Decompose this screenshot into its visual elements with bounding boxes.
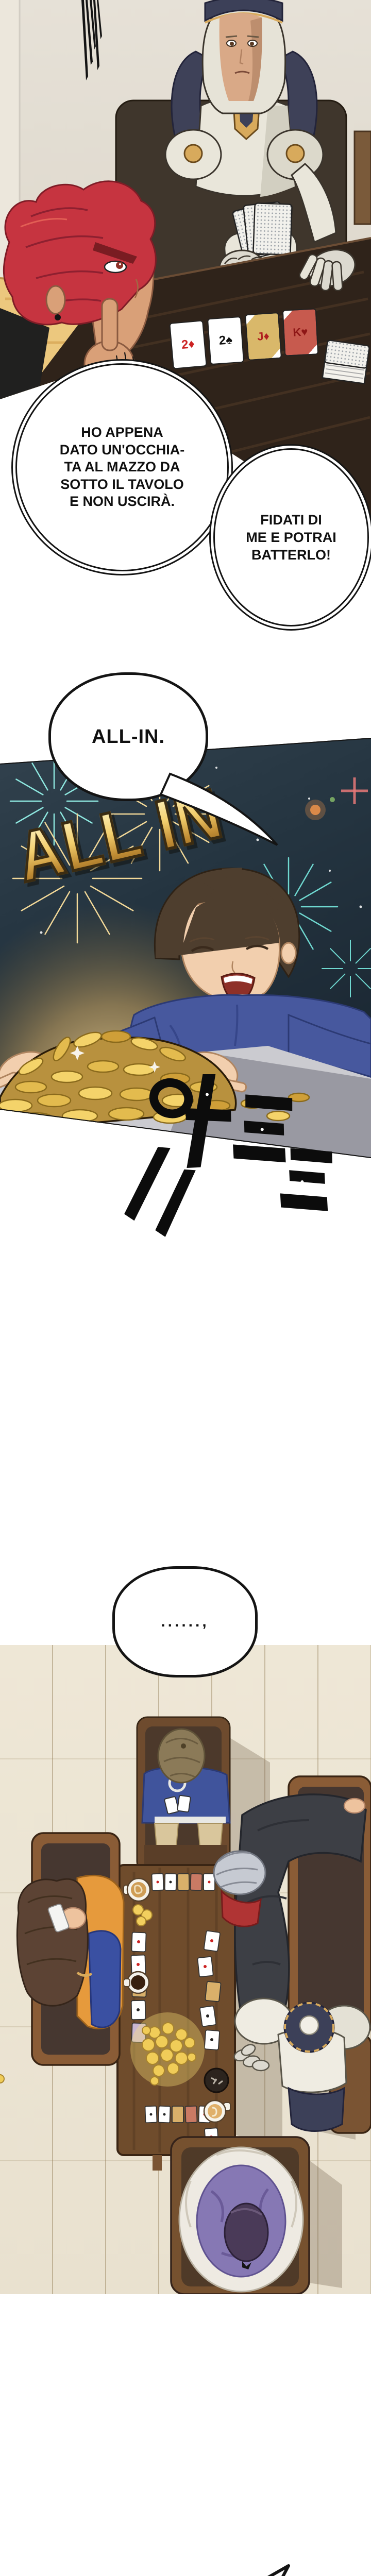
chair-edge: [355, 131, 371, 224]
bubble-line: ALL-IN.: [92, 726, 165, 748]
sfx-coins: 와르르: [124, 1074, 361, 1265]
webtoon-page: 2♦ 2♠ J♦ K♥ HO APPENA DATO UN'OCCHIA- TA…: [0, 0, 371, 2576]
bubble-line: DATO UN'OCCHIA-: [17, 442, 227, 459]
speech-bubble-whisper-1: HO APPENA DATO UN'OCCHIA- TA AL MAZZO DA…: [15, 363, 229, 571]
panel-3: [0, 1645, 371, 2294]
player-top: [137, 1717, 230, 1872]
speech-bubble-whisper-2: FIDATI DI ME E POTRAI BATTERLO!: [213, 448, 369, 626]
bubble-line: TA AL MAZZO DA: [17, 459, 227, 476]
playing-card-face: K♥: [282, 308, 319, 356]
playing-card-face: J♦: [245, 312, 282, 361]
bubble-line: ME E POTRAI: [215, 529, 367, 546]
panel-3-art: [0, 1645, 371, 2294]
card-deck: [323, 340, 370, 384]
community-cards: [151, 1874, 215, 1891]
earring: [55, 314, 61, 320]
speech-bubble-ellipsis: ......,: [112, 1566, 258, 1677]
player-left: [17, 1833, 124, 2065]
player-bottom: [171, 2137, 309, 2294]
ashtray: [205, 2069, 228, 2092]
community-cards-bottom: [145, 2106, 210, 2123]
bubble-line: SOTTO IL TAVOLO: [17, 476, 227, 493]
shout-bubble-shape: [21, 2558, 309, 2576]
bubble-line: E NON USCIRÀ.: [17, 493, 227, 510]
bubble-line: ......,: [161, 1613, 209, 1631]
sfx-coins-strokes: [124, 1074, 361, 1265]
speech-bubble-tail: [155, 768, 299, 855]
playing-card: 2♠: [207, 316, 244, 365]
speech-bubble-shout: MERDA! QUESTA È UNA TRUFFA!: [21, 2558, 309, 2576]
bubble-line: BATTERLO!: [215, 546, 367, 564]
playing-card: 2♦: [169, 320, 207, 369]
attention-lines-icon: [81, 0, 102, 80]
bubble-line: FIDATI DI: [215, 511, 367, 529]
bubble-line: HO APPENA: [17, 424, 227, 441]
